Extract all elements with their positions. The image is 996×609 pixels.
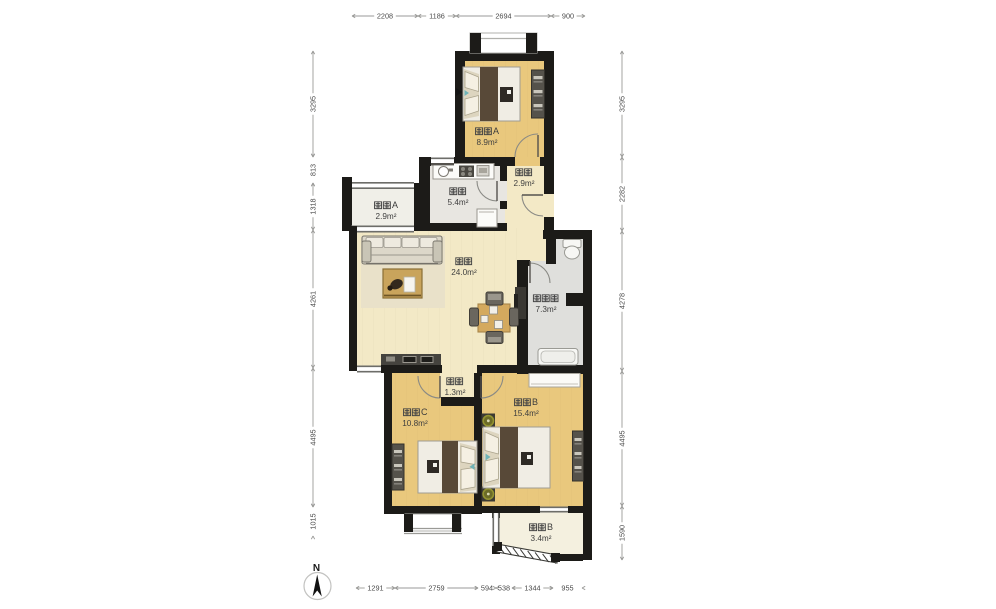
svg-text:4261: 4261 [308,291,317,307]
svg-text:C: C [421,407,428,417]
svg-text:24.0m²: 24.0m² [451,268,477,277]
svg-text:2.9m²: 2.9m² [514,179,535,188]
svg-text:8.9m²: 8.9m² [477,138,498,147]
svg-text:3295: 3295 [617,96,626,112]
svg-text:4495: 4495 [617,430,626,446]
svg-text:4495: 4495 [308,429,317,445]
svg-text:7.3m²: 7.3m² [536,305,557,314]
svg-text:2282: 2282 [617,186,626,202]
svg-text:4278: 4278 [617,293,626,309]
svg-text:594: 594 [481,584,493,593]
svg-text:A: A [493,126,499,136]
svg-text:1291: 1291 [367,584,383,593]
svg-text:2759: 2759 [428,584,444,593]
svg-text:1344: 1344 [524,584,540,593]
svg-text:2208: 2208 [377,12,393,21]
svg-text:2.9m²: 2.9m² [376,212,397,221]
svg-text:B: B [532,397,538,407]
svg-text:1318: 1318 [308,198,317,214]
svg-text:813: 813 [308,164,317,176]
svg-text:1590: 1590 [617,525,626,541]
svg-text:5.4m²: 5.4m² [448,198,469,207]
svg-text:1.3m²: 1.3m² [445,388,466,397]
svg-text:3.4m²: 3.4m² [531,534,552,543]
svg-text:3295: 3295 [308,96,317,112]
svg-text:1015: 1015 [308,513,317,529]
svg-text:A: A [392,200,398,210]
svg-text:955: 955 [561,584,573,593]
svg-text:900: 900 [562,12,574,21]
svg-text:B: B [547,522,553,532]
svg-text:10.8m²: 10.8m² [402,419,428,428]
svg-text:2694: 2694 [495,12,511,21]
svg-text:538: 538 [498,584,510,593]
svg-text:1186: 1186 [429,12,445,21]
svg-text:15.4m²: 15.4m² [513,409,539,418]
